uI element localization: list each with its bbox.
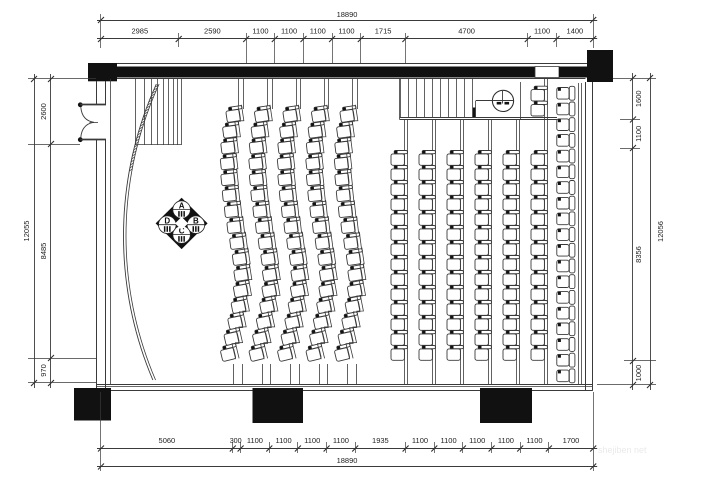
svg-text:shejiben net: shejiben net: [598, 445, 647, 455]
svg-text:18890: 18890: [337, 10, 358, 19]
svg-text:1100: 1100: [469, 436, 485, 445]
svg-text:12055: 12055: [22, 221, 31, 242]
svg-text:1100: 1100: [634, 126, 643, 142]
svg-text:A: A: [179, 201, 185, 210]
svg-text:1100: 1100: [412, 436, 428, 445]
svg-text:1100: 1100: [247, 436, 263, 445]
svg-text:1400: 1400: [567, 27, 584, 36]
svg-text:1100: 1100: [534, 27, 550, 36]
svg-text:1100: 1100: [310, 27, 326, 36]
svg-text:12056: 12056: [656, 221, 665, 242]
svg-text:18890: 18890: [337, 456, 358, 465]
svg-text:970: 970: [39, 364, 48, 377]
svg-text:1100: 1100: [276, 436, 292, 445]
svg-text:1100: 1100: [338, 27, 354, 36]
svg-text:1935: 1935: [372, 436, 389, 445]
svg-text:1100: 1100: [498, 436, 514, 445]
svg-text:1100: 1100: [304, 436, 320, 445]
svg-text:2590: 2590: [204, 27, 221, 36]
svg-text:8485: 8485: [39, 243, 48, 260]
svg-text:4700: 4700: [458, 27, 475, 36]
svg-text:8356: 8356: [634, 246, 643, 263]
svg-text:1100: 1100: [526, 436, 542, 445]
svg-text:1100: 1100: [333, 436, 349, 445]
svg-text:2985: 2985: [131, 27, 148, 36]
svg-text:D: D: [164, 217, 170, 226]
svg-text:1000: 1000: [634, 365, 643, 382]
svg-text:5060: 5060: [159, 436, 176, 445]
svg-text:1100: 1100: [441, 436, 457, 445]
svg-text:1100: 1100: [281, 27, 297, 36]
svg-text:1100: 1100: [252, 27, 268, 36]
svg-text:B: B: [193, 217, 199, 226]
svg-text:1600: 1600: [634, 90, 643, 107]
svg-text:300: 300: [230, 436, 242, 445]
svg-text:2600: 2600: [39, 103, 48, 120]
svg-text:1700: 1700: [563, 436, 580, 445]
svg-text:1715: 1715: [375, 27, 392, 36]
